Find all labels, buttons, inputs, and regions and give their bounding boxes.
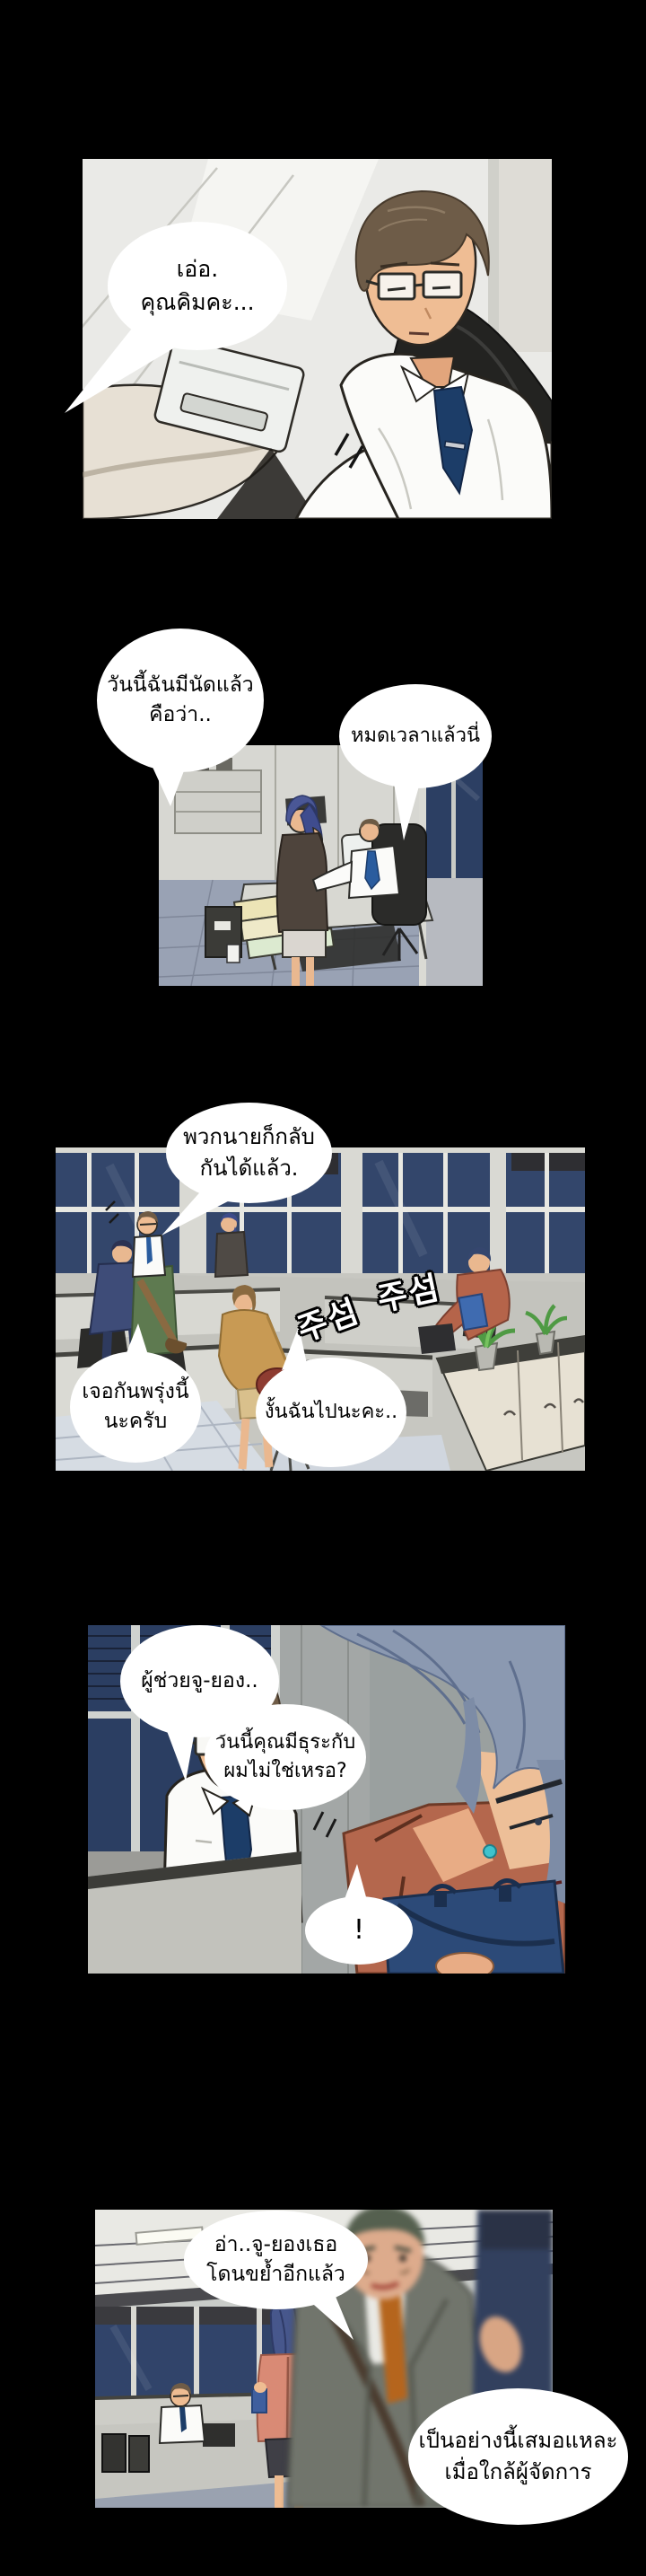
- bubble-line: วันนี้ฉันมีนัดแล้ว: [107, 671, 253, 700]
- bubble-line: เมื่อใกล้ผู้จัดการ: [444, 2457, 591, 2488]
- bubble-line: งั้นฉันไปนะคะ..: [265, 1398, 397, 1427]
- bubble-line: เจอกันพรุ่งนี้: [82, 1377, 188, 1407]
- bubble-line: ผู้ช่วยจู-ยอง..: [141, 1666, 258, 1696]
- bubble-line: เป็นอย่างนี้เสมอแหละ: [419, 2425, 618, 2457]
- bubble-line: พวกนายก็กลับ: [183, 1121, 315, 1153]
- speech-bubble-p3-1: พวกนายก็กลับ กันได้แล้ว.: [166, 1103, 332, 1203]
- speech-bubble-p2-2: หมดเวลาแล้วนี่: [339, 684, 492, 788]
- speech-bubble-p3-2: เจอกันพรุ่งนี้ นะครับ: [70, 1351, 201, 1463]
- bubble-line: !: [354, 1911, 364, 1950]
- speech-bubble-p4-1: ผู้ช่วยจู-ยอง..: [120, 1625, 279, 1737]
- bubble-line: กันได้แล้ว.: [200, 1153, 299, 1184]
- bubble-line: อ่า..จู-ยองเธอ: [214, 2230, 337, 2260]
- speech-bubble-p2-1: วันนี้ฉันมีนัดแล้ว คือว่า..: [97, 629, 264, 772]
- bubble-line: โดนขย้ำอีกแล้ว: [206, 2260, 345, 2290]
- comic-page: เอ่อ. คุณคิมคะ... วันนี้ฉันมีนัดแล้ว คือ…: [0, 0, 646, 2576]
- speech-bubble-p5-2: เป็นอย่างนี้เสมอแหละ เมื่อใกล้ผู้จัดการ: [408, 2388, 628, 2525]
- bubble-line: คือว่า..: [149, 700, 212, 730]
- bubble-line: นะครับ: [104, 1407, 167, 1437]
- bubble-line: หมดเวลาแล้วนี่: [351, 722, 480, 751]
- bubble-line: เอ่อ.: [177, 253, 219, 286]
- bubble-line: วันนี้คุณมีธุระกับ: [215, 1728, 355, 1757]
- speech-bubble-p5-1: อ่า..จู-ยองเธอ โดนขย้ำอีกแล้ว: [184, 2211, 368, 2309]
- bubble-line: คุณคิมคะ...: [140, 286, 254, 319]
- bubble-line: ผมไม่ใช่เหรอ?: [223, 1757, 346, 1786]
- speech-bubble-p4-3: !: [305, 1896, 413, 1965]
- speech-bubble-p1-1: เอ่อ. คุณคิมคะ...: [108, 222, 287, 350]
- speech-bubble-p3-3: งั้นฉันไปนะคะ..: [256, 1358, 406, 1467]
